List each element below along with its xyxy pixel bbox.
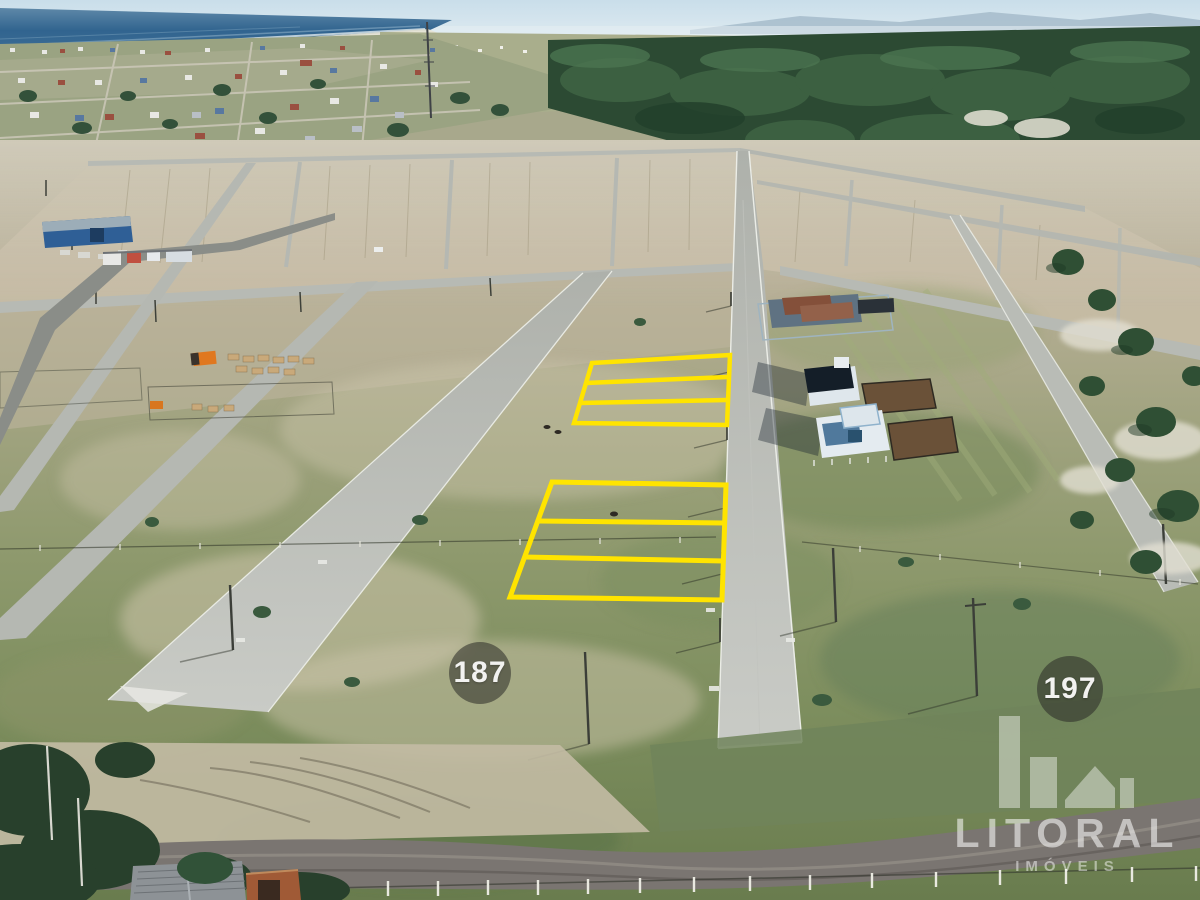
aerial-photo: 187 197 LITORAL IMÓVEIS xyxy=(0,0,1200,900)
brick-shed xyxy=(246,870,301,900)
photo-scene xyxy=(0,0,1200,900)
white-van xyxy=(374,247,383,252)
tree-canopy xyxy=(177,852,233,884)
lot-number-badge-197: 197 xyxy=(1037,656,1103,722)
lot-number-badge-187: 187 xyxy=(449,642,511,704)
